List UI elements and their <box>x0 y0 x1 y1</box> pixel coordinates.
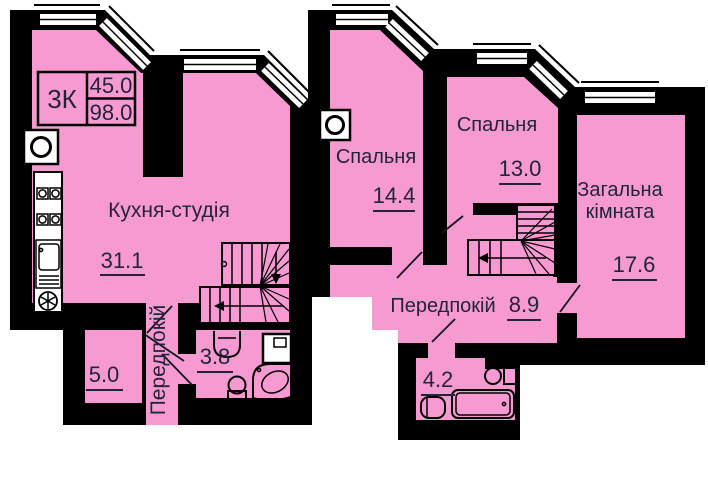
kitchen-studio-area: 31.1 <box>101 248 144 273</box>
unit-area-bottom-label: 98.0 <box>90 100 133 125</box>
storage-area: 5.0 <box>89 362 120 387</box>
unit-area-top-label: 45.0 <box>90 73 133 98</box>
door-opening-bedroom-middle <box>447 203 473 215</box>
bedroom-left-area: 14.4 <box>373 183 416 208</box>
living-room-area: 17.6 <box>613 252 656 277</box>
hallway-lower-label: Передпокій <box>147 305 170 416</box>
floorplan-canvas: 3К 45.0 98.0 <box>0 0 708 500</box>
door-opening-bathroom-upper <box>428 343 455 358</box>
living-room-label-line1: Загальна <box>577 179 663 201</box>
hallway-upper-label: Передпокій <box>390 295 495 317</box>
floor-lower-plan: 3К 45.0 98.0 <box>10 5 316 425</box>
bedroom-middle-area: 13.0 <box>499 156 542 181</box>
bathroom-lower-area: 3.8 <box>200 344 231 369</box>
floorplan-page: 3К 45.0 98.0 <box>0 0 708 500</box>
unit-code-label: 3К <box>47 84 77 114</box>
bathroom-upper-area: 4.2 <box>423 367 454 392</box>
hallway-upper-area: 8.9 <box>509 292 540 317</box>
floor-upper-plan: Спальня 14.4 Спальня 13.0 Загальна кімна… <box>308 5 705 440</box>
window-band-upper-3 <box>581 82 659 103</box>
washing-machine-icon-upper-wall <box>320 110 350 140</box>
window-band-upper-1 <box>332 5 390 25</box>
window-band-top-left <box>34 5 100 25</box>
washing-machine-icon-lower-bath <box>263 334 291 363</box>
door-opening-living <box>557 283 577 313</box>
window-band-upper-2 <box>473 44 531 64</box>
window-band-mid <box>180 50 260 70</box>
wall-pier-lower <box>143 55 183 177</box>
room-living-floor <box>577 115 685 338</box>
kitchen-counter-icon <box>34 172 62 312</box>
kitchen-studio-label: Кухня-студія <box>108 199 230 222</box>
bedroom-left-label: Спальня <box>336 146 416 168</box>
living-room-label-line2: кімната <box>586 201 656 223</box>
bedroom-middle-label: Спальня <box>457 114 537 136</box>
washing-machine-icon-lower-wall <box>24 130 58 164</box>
